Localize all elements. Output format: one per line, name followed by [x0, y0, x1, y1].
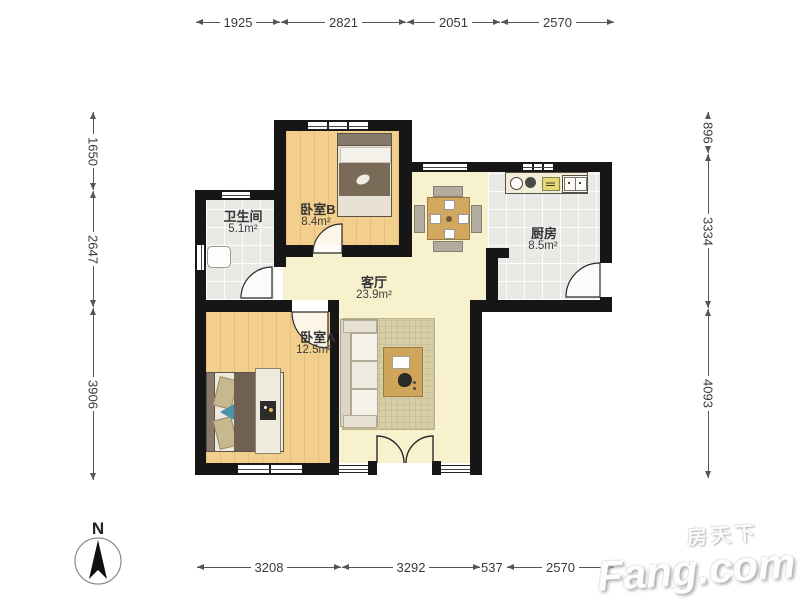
dim-value: 1650: [86, 134, 101, 169]
window: [423, 162, 467, 172]
place-setting: [430, 214, 441, 224]
tv-icon: [260, 401, 276, 420]
room-area-living: 23.9m²: [356, 289, 392, 301]
wall: [498, 248, 509, 258]
dim-value: 2647: [86, 232, 101, 267]
wall: [399, 162, 423, 172]
entry-door-post: [432, 461, 441, 475]
dim-value: 2570: [542, 560, 579, 575]
tray: [392, 356, 410, 369]
bed-blanket: [234, 373, 255, 451]
bed: [337, 133, 392, 217]
dim-value: 2051: [435, 15, 472, 30]
bathroom-vanity: [207, 246, 231, 268]
dim-bottom-1: 3208: [197, 559, 341, 575]
window: [339, 465, 368, 473]
dining-chair-left: [414, 205, 425, 233]
wall: [342, 245, 412, 257]
wall: [328, 300, 339, 312]
window: [238, 463, 302, 475]
kitchen-counter: [505, 172, 588, 194]
compass-needle-icon: [89, 540, 107, 579]
entry-door-post: [368, 461, 377, 475]
sofa-backrest: [341, 320, 351, 426]
dim-top-2: 2821: [281, 14, 406, 30]
drain-dot: [579, 182, 581, 184]
place-setting: [458, 214, 469, 224]
fang-watermark: 房天下 Fang.com: [593, 514, 796, 597]
watermark-logo: Fang.com: [596, 543, 797, 597]
dim-top-3: 2051: [407, 14, 500, 30]
dim-bottom-3: 537: [481, 559, 506, 575]
bed-headboard: [338, 134, 391, 146]
wall: [486, 248, 498, 302]
dim-value: 3906: [86, 377, 101, 412]
dim-right-2: 3334: [700, 154, 716, 308]
dim-right-1: 896: [700, 112, 716, 153]
sofa: [340, 319, 378, 427]
cup: [413, 381, 416, 384]
table-centerpiece: [446, 216, 452, 222]
kettle: [398, 373, 412, 387]
floorplan-canvas: 卫生间 5.1m² 卧室B 8.4m² 厨房 8.5m² 客厅 23.9m² 卧…: [0, 0, 800, 600]
drain-dot: [568, 182, 570, 184]
room-area-bathroom: 5.1m²: [228, 223, 257, 235]
coffee-table: [383, 347, 423, 397]
cup: [413, 387, 416, 390]
wall: [470, 300, 482, 475]
dim-top-4: 2570: [501, 14, 614, 30]
dim-value: 1925: [220, 15, 257, 30]
sofa-cushion: [351, 389, 378, 417]
tv-dot: [269, 408, 273, 412]
sink-round-icon: [510, 177, 523, 190]
wall: [195, 300, 292, 312]
dim-value: 3208: [251, 560, 288, 575]
place-setting: [444, 229, 455, 239]
window: [308, 120, 368, 131]
bed-headboard: [207, 373, 215, 451]
compass-north-label: N: [92, 519, 104, 539]
watermark-chinese: 房天下: [593, 517, 759, 557]
burner-icon: [525, 177, 536, 188]
dim-value: 3334: [701, 214, 716, 249]
dim-value: 3292: [393, 560, 430, 575]
window: [441, 465, 470, 473]
dim-value: 2570: [539, 15, 576, 30]
wall: [195, 190, 206, 245]
compass-circle: [75, 538, 121, 584]
bed-pillows: [340, 147, 391, 163]
dim-bottom-2: 3292: [342, 559, 480, 575]
double-sink-icon: [562, 175, 588, 193]
room-area-kitchen: 8.5m²: [528, 240, 557, 252]
tv-dresser: [255, 368, 281, 454]
wall: [250, 190, 285, 200]
dining-chair-right: [471, 205, 482, 233]
wall: [467, 162, 523, 172]
tv-dot: [264, 406, 267, 409]
dim-right-3: 4093: [700, 309, 716, 478]
sofa-armrest: [343, 320, 377, 333]
wall: [302, 463, 339, 475]
dim-top-1: 1925: [196, 14, 280, 30]
dim-value: 896: [701, 119, 716, 147]
dining-chair-top: [433, 186, 463, 197]
dim-left-2: 2647: [85, 191, 101, 307]
dining-table: [427, 197, 470, 240]
dim-left-3: 3906: [85, 308, 101, 480]
window: [222, 190, 250, 200]
sofa-armrest: [343, 415, 377, 428]
window: [195, 245, 206, 270]
dim-value: 537: [481, 560, 503, 575]
wall: [399, 120, 412, 257]
dim-value: 2821: [325, 15, 362, 30]
sofa-cushion: [351, 333, 378, 361]
dim-value: 4093: [701, 376, 716, 411]
dim-bottom-4: 2570: [507, 559, 614, 575]
dim-left-1: 1650: [85, 112, 101, 190]
wall: [274, 245, 313, 257]
sink-basin: [575, 177, 587, 191]
window: [523, 162, 553, 172]
wall: [195, 463, 238, 475]
wall: [600, 162, 612, 263]
place-setting: [444, 200, 455, 210]
sofa-cushion: [351, 361, 378, 389]
room-area-bedroom-b: 8.4m²: [301, 216, 330, 228]
dining-chair-bottom: [433, 241, 463, 252]
room-area-bedroom-a: 12.5m²: [296, 344, 332, 356]
stove-icon: [542, 177, 560, 191]
stove-grate: [546, 181, 555, 186]
